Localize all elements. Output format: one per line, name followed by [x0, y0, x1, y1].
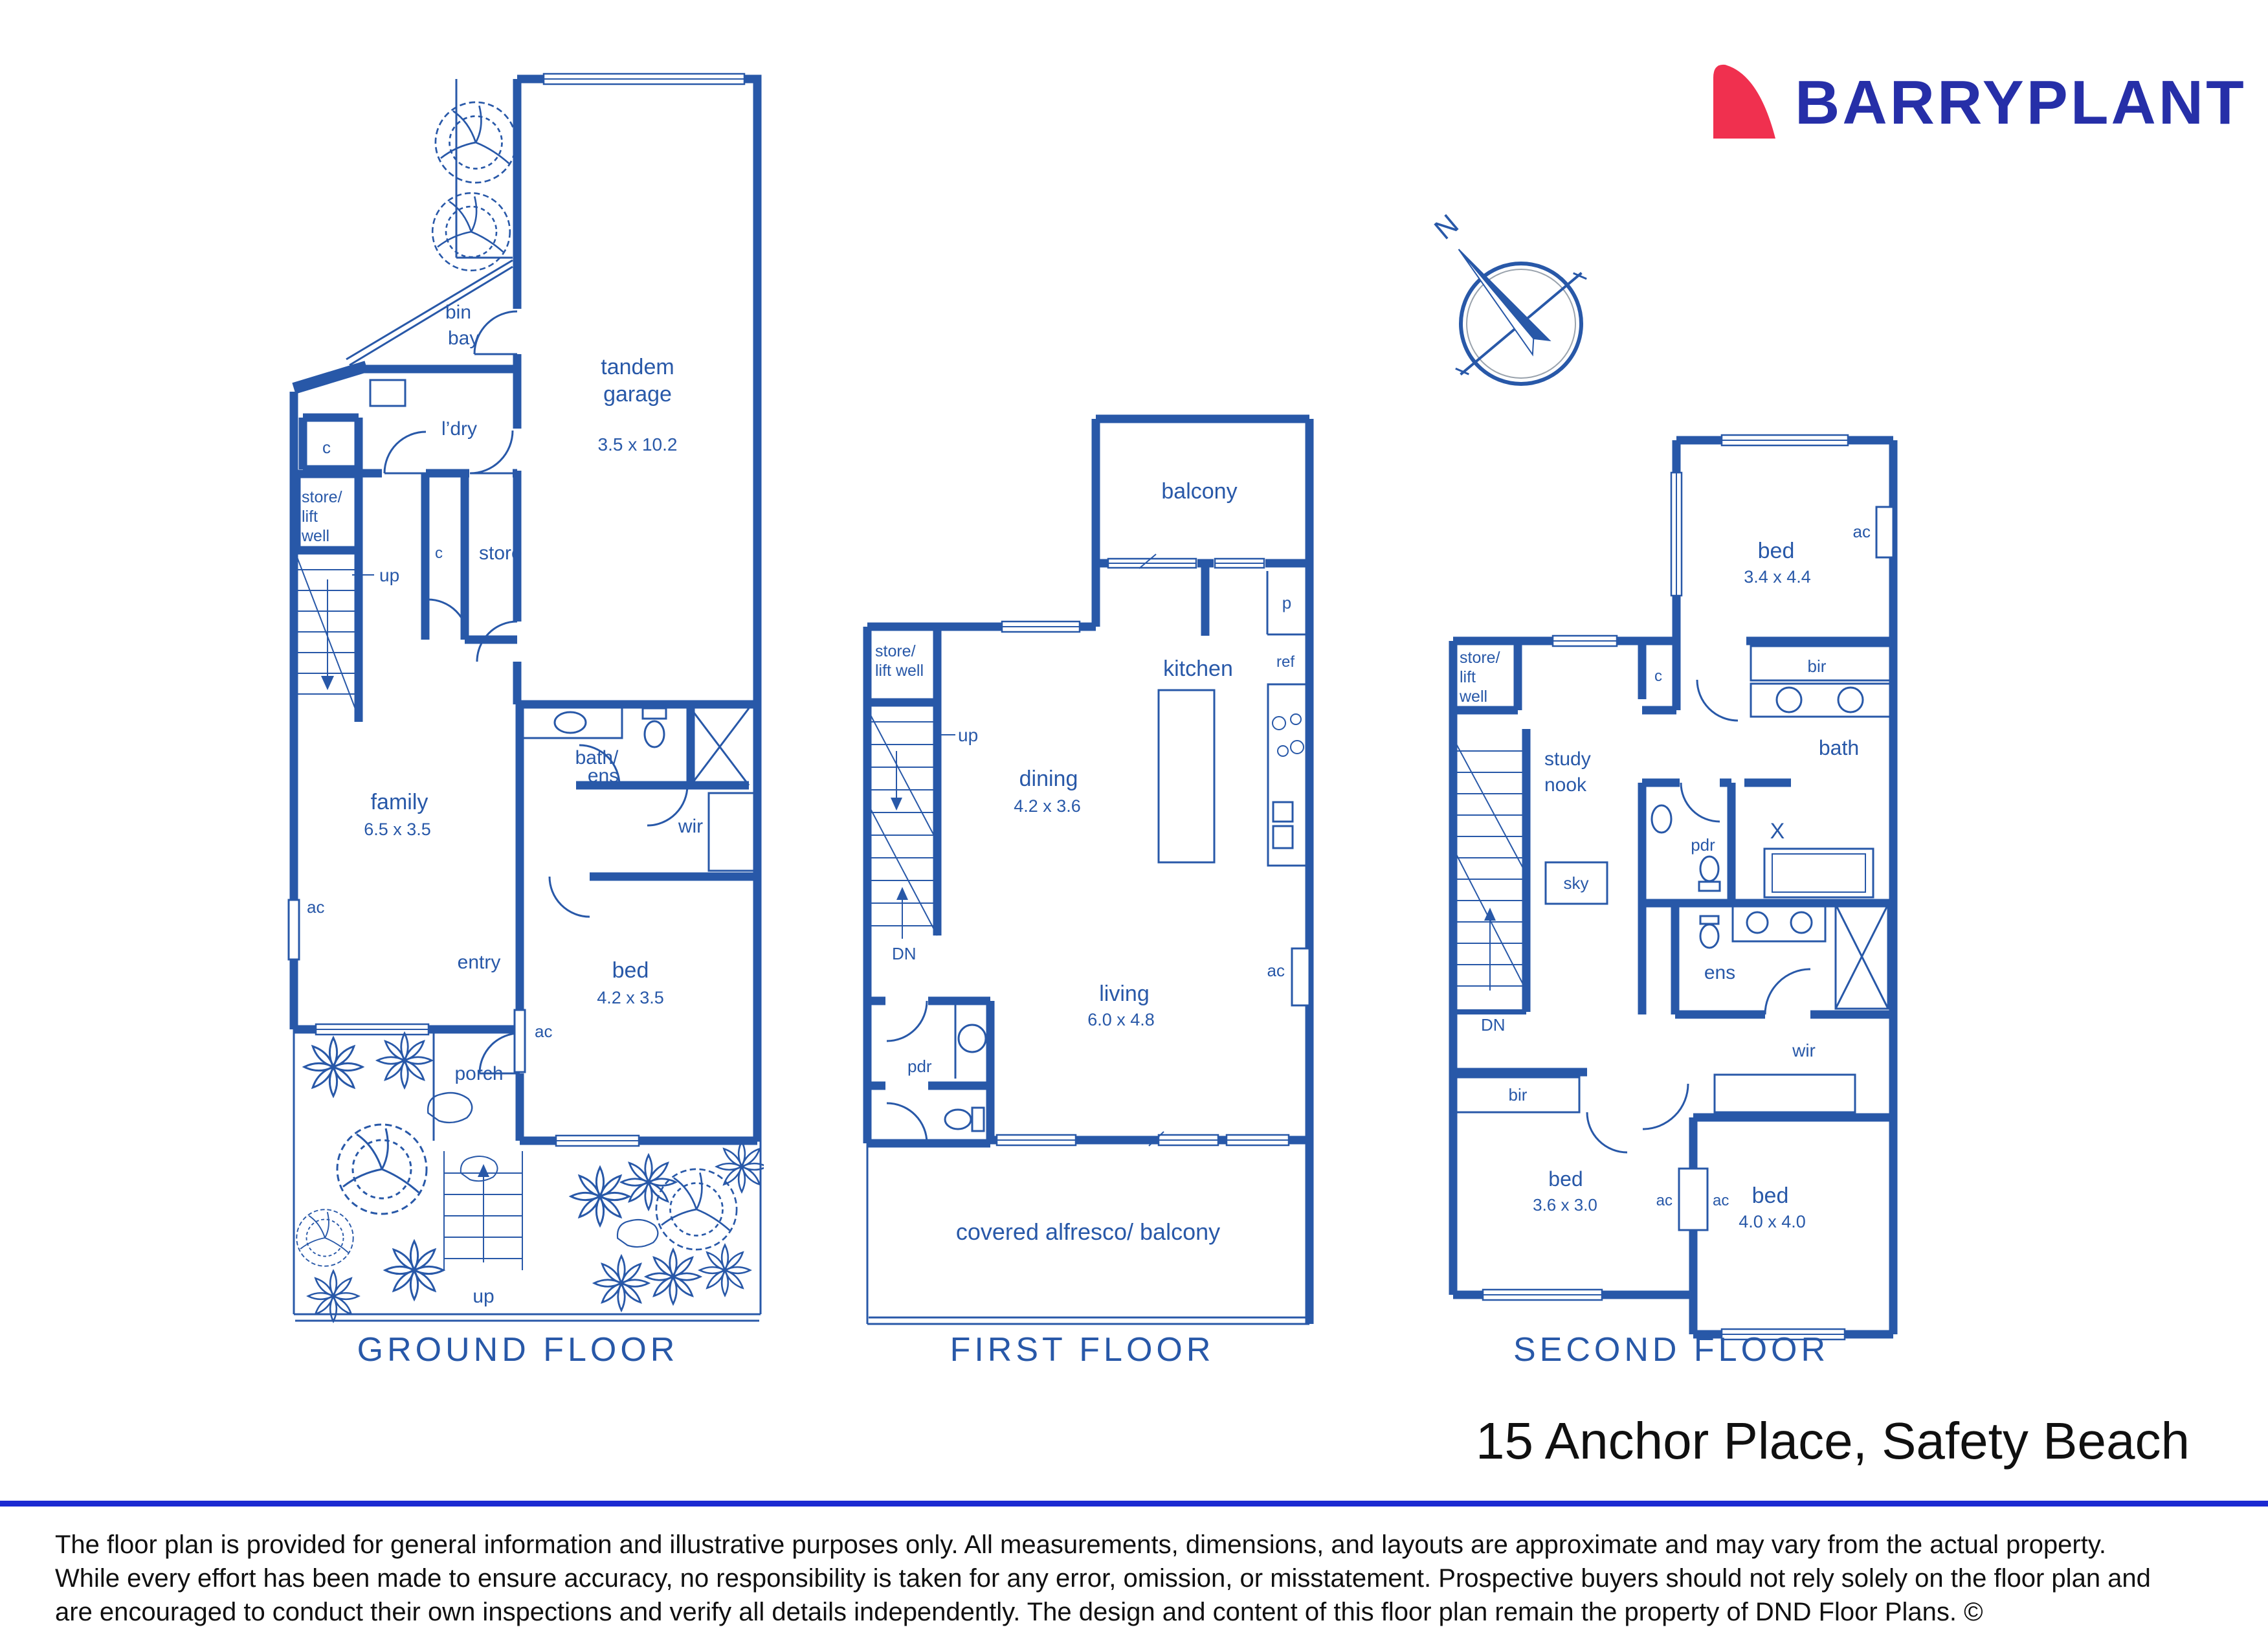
room-label-kitchen: kitchen: [1163, 656, 1233, 681]
room-label-store-lift-3: well: [1459, 688, 1487, 706]
stairs-label-dn: DN: [892, 944, 917, 963]
divider-rule: [0, 1501, 2268, 1507]
label-ac-right: ac: [1713, 1192, 1729, 1209]
toilet-icon: [1699, 857, 1720, 891]
disclaimer-text: The floor plan is provided for general i…: [55, 1528, 2151, 1629]
room-label-store-lift-3: well: [301, 527, 329, 545]
room-label-bath: bath: [1819, 736, 1859, 759]
room-label-wir: wir: [1792, 1040, 1816, 1060]
external-stairs: [444, 1151, 522, 1270]
stairs-label-up-2: up: [472, 1286, 494, 1307]
label-pantry: p: [1282, 593, 1291, 612]
room-label-pdr: pdr: [907, 1057, 932, 1076]
balcony-doors: [1108, 554, 1264, 568]
room-label-bir2: bir: [1509, 1085, 1528, 1104]
room-label-store-lift-2: lift well: [875, 662, 924, 680]
hall-window: [1553, 636, 1617, 646]
stairs-label-up: up: [958, 725, 978, 745]
brand-name: BARRYPLANT: [1795, 67, 2247, 139]
disclaimer-line-3: are encouraged to conduct their own insp…: [55, 1595, 2151, 1629]
room-dim-bed1: 3.4 x 4.4: [1744, 567, 1811, 587]
room-label-bed2: bed: [1548, 1167, 1583, 1191]
room-label-tandem: tandem: [601, 355, 674, 379]
room-label-living: living: [1099, 981, 1149, 1006]
label-ac-left: ac: [1656, 1192, 1673, 1209]
label-ac-top: ac: [1853, 522, 1871, 541]
room-label-c2: c: [435, 544, 443, 562]
ground-floor-plan: bin bay l’dry c store/ lift well up c st…: [285, 65, 764, 1334]
label-sky: sky: [1564, 873, 1589, 893]
garage-window: [544, 74, 744, 84]
room-dim-family: 6.5 x 3.5: [364, 820, 431, 839]
room-label-store-lift-2: lift: [1460, 668, 1476, 686]
dining-window: [1002, 622, 1080, 632]
room-label-store-lift-1: store/: [875, 642, 916, 660]
second-floor-plan: store/ lift well c bed 3.4 x 4.4 ac bir …: [1443, 434, 1903, 1353]
room-label-bay: bay: [448, 328, 479, 349]
label-ac: ac: [1267, 961, 1285, 980]
label-ac-1: ac: [307, 897, 324, 917]
room-dim-dining: 4.2 x 3.6: [1014, 796, 1081, 816]
room-label-garage: garage: [603, 382, 672, 407]
room-label-study: study: [1544, 748, 1591, 770]
stairs: [1453, 738, 1526, 991]
title-first-floor: FIRST FLOOR: [950, 1330, 1215, 1369]
room-label-c: c: [1654, 667, 1662, 685]
room-label-store-lift-2: lift: [302, 508, 318, 526]
room-label-nook: nook: [1544, 774, 1587, 796]
shower-icon: [1836, 904, 1888, 1009]
stairs: [867, 709, 955, 939]
room-dim-bed: 4.2 x 3.5: [597, 988, 664, 1007]
room-label-balcony: balcony: [1161, 479, 1237, 504]
room-label-alfresco: covered alfresco/ balcony: [956, 1218, 1220, 1245]
first-floor-plan: balcony store/ lift well up DN dining 4.…: [861, 388, 1314, 1379]
room-dim-bed2: 3.6 x 3.0: [1533, 1195, 1597, 1215]
disclaimer-line-1: The floor plan is provided for general i…: [55, 1528, 2151, 1562]
property-address: 15 Anchor Place, Safety Beach: [1476, 1411, 2190, 1471]
compass-icon: N: [1417, 194, 1612, 427]
room-label-dining: dining: [1019, 767, 1078, 791]
room-label-bin: bin: [445, 302, 471, 323]
room-label-store-lift-1: store/: [1460, 649, 1500, 667]
disclaimer-line-2: While every effort has been made to ensu…: [55, 1562, 2151, 1595]
bed2-window: [1483, 1290, 1602, 1300]
room-label-bed3: bed: [1752, 1183, 1789, 1208]
room-label-ldry: l’dry: [441, 418, 477, 440]
room-label-ens: ens: [588, 765, 619, 787]
toilet-icon: [945, 1108, 984, 1131]
tree-icon: [432, 193, 510, 271]
room-dim-garage: 3.5 x 10.2: [598, 434, 678, 454]
compass-north-label: N: [1429, 208, 1465, 246]
room-label-c1: c: [322, 438, 331, 457]
room-label-store: store: [479, 543, 522, 564]
room-label-ens: ens: [1704, 962, 1735, 983]
room-label-entry: entry: [458, 952, 501, 973]
room-dim-living: 6.0 x 4.8: [1087, 1010, 1155, 1029]
toilet-icon: [1700, 916, 1718, 948]
logo-sail-icon: [1712, 62, 1777, 140]
room-label-bed: bed: [612, 958, 649, 983]
cooktop-icon: [1273, 714, 1304, 756]
barry-plant-logo: BARRYPLANT: [1712, 62, 2247, 140]
label-x: X: [1770, 819, 1785, 844]
room-label-bir1: bir: [1808, 656, 1827, 676]
title-ground-floor: GROUND FLOOR: [357, 1330, 679, 1369]
room-dim-bed3: 4.0 x 4.0: [1739, 1212, 1806, 1231]
room-label-pdr: pdr: [1691, 835, 1715, 855]
stairs-label-dn: DN: [1481, 1015, 1506, 1035]
label-ref: ref: [1276, 653, 1295, 671]
bed-window: [556, 1136, 639, 1146]
room-label-bed1: bed: [1758, 539, 1795, 563]
stairs-label-up: up: [379, 565, 399, 585]
floorplan-page: BARRYPLANT N: [0, 0, 2268, 1647]
room-label-wir: wir: [678, 816, 703, 837]
room-label-store-lift-1: store/: [302, 488, 342, 506]
family-window: [316, 1024, 428, 1035]
title-second-floor: SECOND FLOOR: [1513, 1330, 1829, 1369]
room-label-family: family: [371, 790, 428, 814]
tree-icon: [436, 102, 516, 183]
room-label-porch: porch: [454, 1063, 503, 1084]
label-ac-2: ac: [535, 1022, 552, 1041]
